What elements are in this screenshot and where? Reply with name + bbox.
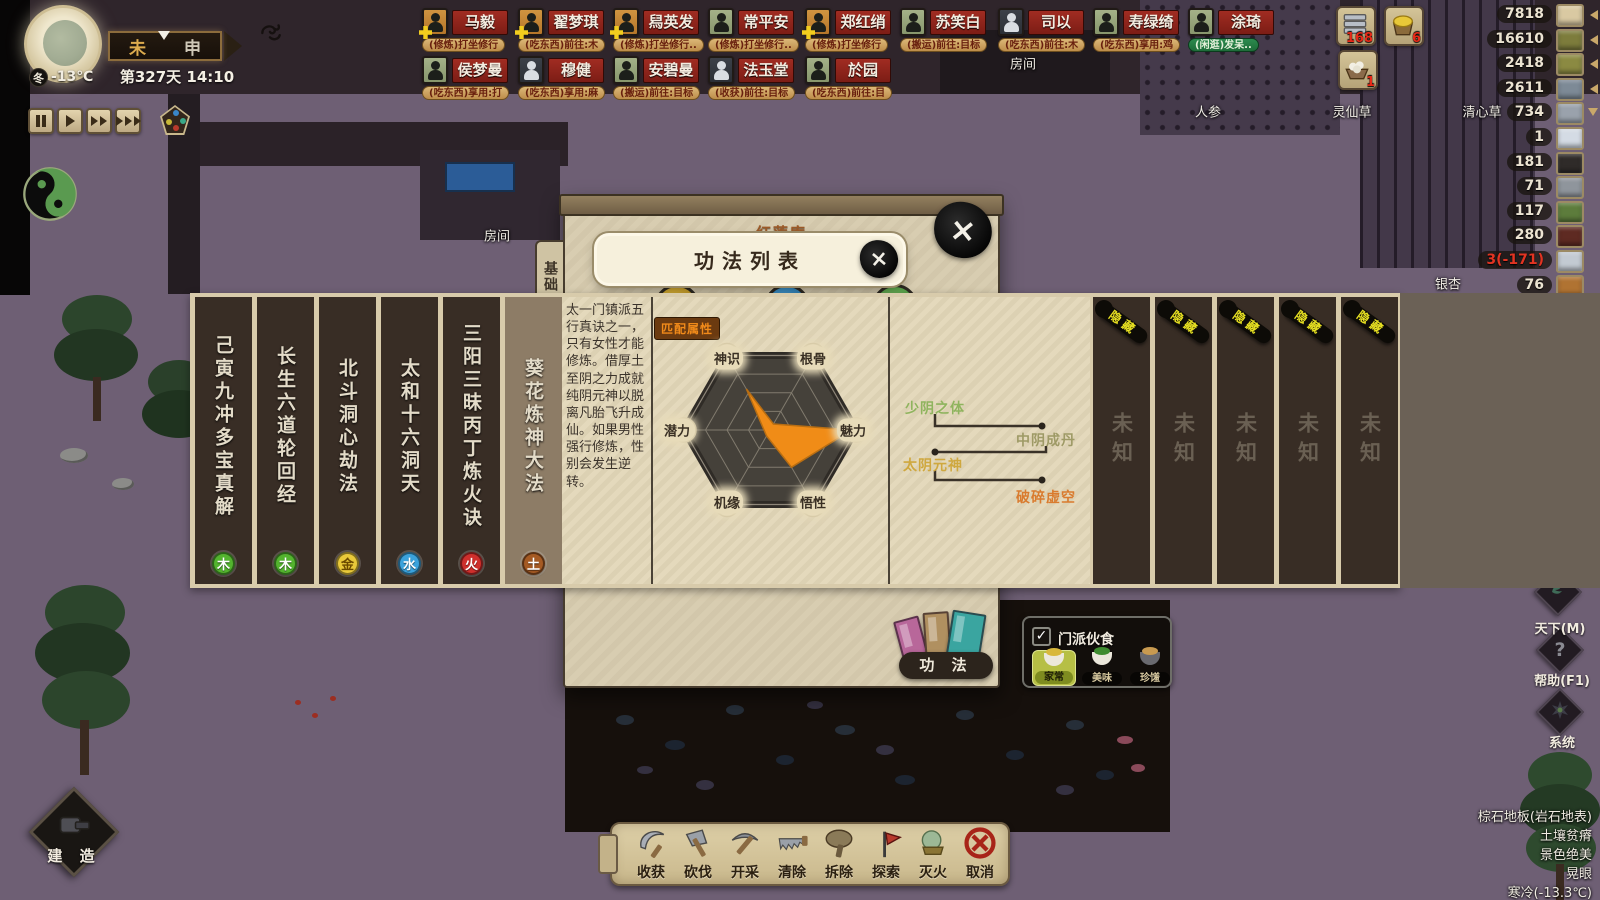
character-avatar-icon <box>805 8 831 36</box>
tool-label: 取消 <box>957 862 1003 882</box>
cooked-food-icon <box>1556 4 1584 27</box>
hour-from: 未 <box>110 34 165 59</box>
system-icon <box>1545 697 1575 727</box>
herb-icon <box>1556 29 1584 52</box>
pause-button[interactable] <box>28 108 54 134</box>
element-badge: 木 <box>212 552 235 575</box>
character-name: 马毅 <box>452 10 508 35</box>
alert-button[interactable]: 1 <box>1338 50 1378 90</box>
resource-count: 280 <box>1507 226 1552 244</box>
hour-to: 申 <box>165 34 220 59</box>
resource-row[interactable]: 2418 <box>1408 54 1598 76</box>
tile-info-line: 景色绝美 <box>1272 844 1592 863</box>
character-card[interactable]: 马毅(修炼)打坐修行 <box>422 8 518 56</box>
ore-icon <box>1556 225 1584 248</box>
temperature-label: -13℃ <box>51 69 93 85</box>
world-label: 人参 <box>1195 102 1221 121</box>
character-name: 舄英发 <box>643 10 699 35</box>
technique-column[interactable]: 己寅九冲多宝真解木 <box>195 297 252 584</box>
character-status: (吃东西)享用:打 <box>422 86 509 100</box>
radar-axis-label: 悟性 <box>797 491 829 514</box>
resource-count: 2418 <box>1497 54 1552 72</box>
element-badge: 土 <box>522 552 545 575</box>
character-name: 司以 <box>1028 10 1084 35</box>
technique-strip-filler <box>1400 293 1600 588</box>
character-card[interactable]: 穆健(吃东西)享用:麻 <box>518 56 614 104</box>
resource-count: 734 <box>1507 103 1552 121</box>
fish-icon <box>1556 78 1584 101</box>
character-card[interactable]: 司以(吃东西)前往:木 <box>998 8 1094 56</box>
tool-extinguish[interactable]: 灭火 <box>910 826 956 884</box>
tile-info-line: 土壤贫瘠 <box>1272 825 1592 844</box>
rock <box>60 448 88 463</box>
tool-label: 拆除 <box>816 862 862 882</box>
element-badge: 金 <box>336 552 359 575</box>
creature <box>312 713 318 718</box>
bowl-icon <box>1556 127 1584 150</box>
divider <box>651 297 653 584</box>
technique-name: 太和十六洞天 <box>396 297 423 552</box>
meal-option-label: 家常 <box>1035 671 1073 684</box>
unknown-technique-column[interactable]: 隐藏未知 <box>1217 297 1274 584</box>
character-name: 翟梦琪 <box>548 10 604 35</box>
hour-arrow-icon <box>224 31 242 61</box>
character-card[interactable]: 安碧曼(搬运)前往:目标 <box>613 56 709 104</box>
cultivation-stage-label: 破碎虚空 <box>1016 487 1076 507</box>
tool-label: 砍伐 <box>675 862 721 882</box>
resource-row[interactable]: 7818 <box>1408 5 1598 27</box>
tool-label: 探索 <box>863 862 909 882</box>
unknown-label: 未知 <box>1169 412 1199 470</box>
resource-row[interactable]: 734 <box>1408 103 1598 125</box>
creature <box>295 700 301 705</box>
character-avatar-icon <box>708 8 734 36</box>
tool-mallet[interactable]: 拆除 <box>816 826 862 884</box>
hour-marker-icon <box>158 31 170 40</box>
element-badge: 木 <box>274 552 297 575</box>
hammer-icon <box>54 810 94 846</box>
character-avatar-icon <box>422 8 448 36</box>
radar-axis-label: 魅力 <box>837 419 869 442</box>
character-name: 於园 <box>835 58 891 83</box>
iron-bar-icon <box>1556 176 1584 199</box>
world-label: 房间 <box>484 226 510 245</box>
technique-name: 葵花炼神大法 <box>520 297 547 552</box>
plant-icon <box>1556 201 1584 224</box>
technique-name: 北斗洞心劫法 <box>334 297 361 552</box>
character-avatar-icon <box>518 8 544 36</box>
character-card[interactable]: 涂琦(闲逛)发呆.. <box>1188 8 1284 56</box>
character-name: 穆健 <box>548 58 604 83</box>
coal-icon <box>1556 152 1584 175</box>
resource-count: 181 <box>1507 153 1552 171</box>
tool-saw[interactable]: 清除 <box>769 826 815 884</box>
cultivation-stage-label: 中阴成丹 <box>1016 430 1076 450</box>
character-name: 苏笑白 <box>930 10 986 35</box>
technique-column[interactable]: 葵花炼神大法土 <box>505 297 562 584</box>
character-status: (修炼)打坐修行 <box>422 38 505 52</box>
tool-sickle[interactable]: 收获 <box>628 826 674 884</box>
pine-tree <box>30 585 140 780</box>
resource-row[interactable]: 117 <box>1408 202 1598 224</box>
character-avatar-icon <box>900 8 926 36</box>
character-name: 常平安 <box>738 10 794 35</box>
creature <box>330 696 336 701</box>
tool-axe[interactable]: 砍伐 <box>675 826 721 884</box>
character-status: (吃东西)前往:木 <box>518 38 605 52</box>
character-status: (闲逛)发呆.. <box>1188 38 1259 52</box>
element-badge: 水 <box>398 552 421 575</box>
radar-axis-label: 神识 <box>711 347 743 370</box>
alert-button[interactable]: 168 <box>1336 6 1376 46</box>
character-card[interactable]: 法玉堂(收获)前往:目标 <box>708 56 804 104</box>
toolbar-scroll-cap <box>598 834 618 874</box>
character-card[interactable]: 舄英发(修炼)打坐修行.. <box>613 8 709 56</box>
resource-row[interactable]: 71 <box>1408 177 1598 199</box>
gongfa-list-dialog: 功法列表 <box>597 236 903 283</box>
fastest-forward-button[interactable] <box>115 108 141 134</box>
meals-title: 门派伙食 <box>1058 629 1114 649</box>
date-time-label: 第327天 14:10 <box>112 66 242 87</box>
character-card[interactable]: 寿绿绮(吃东西)享用:鸡 <box>1093 8 1189 56</box>
resource-count: 1 <box>1526 128 1552 146</box>
rock <box>112 478 134 490</box>
metal-bar-icon <box>1556 102 1584 125</box>
character-status: (修炼)打坐修行.. <box>613 38 704 52</box>
unknown-label: 未知 <box>1355 412 1385 470</box>
character-avatar-icon <box>805 56 831 84</box>
character-card[interactable]: 常平安(修炼)打坐修行.. <box>708 8 804 56</box>
tool-label: 收获 <box>628 862 674 882</box>
dialog-title: 功法列表 <box>694 245 806 274</box>
resource-row[interactable]: 2611 <box>1408 79 1598 101</box>
unknown-label: 未知 <box>1293 412 1323 470</box>
character-avatar-icon <box>613 56 639 84</box>
character-status: (修炼)打坐修行.. <box>708 38 799 52</box>
silver-bar-icon <box>1556 250 1584 273</box>
unknown-technique-column[interactable]: 隐藏未知 <box>1093 297 1150 584</box>
resource-count: 2611 <box>1497 79 1552 97</box>
technique-column[interactable]: 长生六道轮回经木 <box>257 297 314 584</box>
character-status: (吃东西)前往:目 <box>805 86 892 100</box>
character-name: 郑红绡 <box>835 10 891 35</box>
hidden-ribbon-badge: 隐藏 <box>1220 301 1274 346</box>
technique-description: 太一门镇派五行真诀之一，只有女性才能修炼。借厚土至阴之力成就纯阴元神以脱离凡胎飞… <box>566 302 650 578</box>
character-name: 寿绿绮 <box>1123 10 1179 35</box>
sect-meals-panel: ✓ 门派伙食 家常美味珍馐 <box>1022 616 1172 688</box>
character-card[interactable]: 郑红绡(修炼)打坐修行 <box>805 8 901 56</box>
unknown-label: 未知 <box>1231 412 1261 470</box>
tile-info-line: 晃眼 <box>1272 863 1592 882</box>
character-avatar-icon <box>422 56 448 84</box>
tool-label: 灭火 <box>910 862 956 882</box>
system-icon <box>1548 698 1572 727</box>
resource-row[interactable]: 3(-171) <box>1408 251 1598 273</box>
alert-count: 168 <box>1346 31 1373 46</box>
pine-tree <box>50 295 145 425</box>
herb-icon <box>1556 53 1584 76</box>
hidden-ribbon-badge: 隐藏 <box>1344 301 1398 346</box>
meal-option[interactable]: 家常 <box>1032 650 1076 686</box>
cultivation-stage-label: 少阴之体 <box>905 398 965 418</box>
character-status: (搬运)前往:目标 <box>900 38 987 52</box>
resource-count: 3(-171) <box>1478 251 1552 269</box>
character-card[interactable]: 苏笑白(搬运)前往:目标 <box>900 8 996 56</box>
technique-column[interactable]: 太和十六洞天水 <box>381 297 438 584</box>
order-toolbar: 收获砍伐开采清除拆除探索灭火取消 <box>610 822 1010 886</box>
side-button-label: 帮助(F1) <box>1534 670 1590 689</box>
meals-checkbox[interactable]: ✓ <box>1032 627 1051 646</box>
radar-axis-label: 根骨 <box>797 347 829 370</box>
character-status: (收获)前往:目标 <box>708 86 795 100</box>
character-card[interactable]: 侯梦曼(吃东西)享用:打 <box>422 56 518 104</box>
system-button[interactable] <box>1536 688 1584 736</box>
play-button[interactable] <box>57 108 83 134</box>
food-bowl-icon <box>1140 652 1160 665</box>
tool-label: 开采 <box>722 862 768 882</box>
match-attributes-badge: 匹配属性 <box>654 317 720 340</box>
radar-axis-label: 潜力 <box>661 419 693 442</box>
character-status: (吃东西)前往:木 <box>998 38 1085 52</box>
character-avatar-icon <box>1093 8 1119 36</box>
resource-count: 16610 <box>1487 30 1552 48</box>
furniture <box>445 162 515 192</box>
resource-arrow-icon <box>1590 59 1598 69</box>
help-icon: ? <box>1545 635 1575 665</box>
technique-column[interactable]: 三阳三昧丙丁炼火诀火 <box>443 297 500 584</box>
character-status: (修炼)打坐修行 <box>805 38 888 52</box>
resource-row[interactable]: 1 <box>1408 128 1598 150</box>
character-name: 安碧曼 <box>643 58 699 83</box>
meal-option[interactable]: 美味 <box>1080 650 1124 686</box>
resource-row[interactable]: 181 <box>1408 153 1598 175</box>
radar-axis-label: 机缘 <box>711 491 743 514</box>
fast-forward-button[interactable] <box>86 108 112 134</box>
meal-option-label: 珍馐 <box>1130 672 1170 685</box>
character-name: 法玉堂 <box>738 58 794 83</box>
world-label: 灵仙草 <box>1332 102 1371 121</box>
technique-name: 己寅九冲多宝真解 <box>210 297 237 552</box>
technique-column[interactable]: 北斗洞心劫法金 <box>319 297 376 584</box>
technique-name: 三阳三昧丙丁炼火诀 <box>458 297 485 552</box>
hidden-ribbon-badge: 隐藏 <box>1096 301 1150 346</box>
resource-arrow-icon <box>1588 108 1598 116</box>
wind-icon <box>258 20 284 46</box>
tool-pickaxe[interactable]: 开采 <box>722 826 768 884</box>
character-status: (吃东西)享用:麻 <box>518 86 605 100</box>
character-avatar-icon <box>998 8 1024 36</box>
character-avatar-icon <box>1188 8 1214 36</box>
unknown-label: 未知 <box>1107 412 1137 470</box>
tool-cancel[interactable]: 取消 <box>957 826 1003 884</box>
resource-count: 7818 <box>1497 5 1552 23</box>
unknown-technique-column[interactable]: 隐藏未知 <box>1155 297 1212 584</box>
build-button-label: 建 造 <box>18 845 130 866</box>
alert-count: 1 <box>1366 75 1375 90</box>
character-avatar-icon <box>708 56 734 84</box>
character-name: 侯梦曼 <box>452 58 508 83</box>
resource-count: 71 <box>1517 177 1552 195</box>
resource-arrow-icon <box>1590 35 1598 45</box>
unknown-technique-column[interactable]: 隐藏未知 <box>1341 297 1398 584</box>
resource-row[interactable]: 280 <box>1408 226 1598 248</box>
character-status: (吃东西)享用:鸡 <box>1093 38 1180 52</box>
resource-arrow-icon <box>1590 84 1598 94</box>
season-badge: 冬 <box>29 68 48 87</box>
character-avatar-icon <box>518 56 544 84</box>
character-status: (搬运)前往:目标 <box>613 86 700 100</box>
side-button-label: 系统 <box>1549 732 1575 751</box>
character-avatar-icon <box>613 8 639 36</box>
resource-row[interactable]: 16610 <box>1408 30 1598 52</box>
food-bowl-icon <box>1044 653 1064 666</box>
technique-name: 长生六道轮回经 <box>272 297 299 552</box>
resource-count: 117 <box>1507 202 1552 220</box>
tile-info-line: 棕石地板(岩石地表) <box>1272 806 1592 825</box>
cultivation-stage-label: 太阴元神 <box>903 455 963 475</box>
character-name: 涂琦 <box>1218 10 1274 35</box>
unknown-technique-column[interactable]: 隐藏未知 <box>1279 297 1336 584</box>
character-card[interactable]: 於园(吃东西)前往:目 <box>805 56 901 104</box>
hidden-ribbon-badge: 隐藏 <box>1158 301 1212 346</box>
hidden-ribbon-badge: 隐藏 <box>1282 301 1336 346</box>
meal-option-label: 美味 <box>1082 672 1122 685</box>
world-label: 房间 <box>1010 54 1036 73</box>
meal-option[interactable]: 珍馐 <box>1128 650 1172 686</box>
food-bowl-icon <box>1092 652 1112 665</box>
tool-explore[interactable]: 探索 <box>863 826 909 884</box>
stored-items <box>585 690 1155 825</box>
tile-info-line: 寒冷(-13.3℃) <box>1272 882 1592 900</box>
resource-count: 76 <box>1517 276 1552 294</box>
game-screen: 人参灵仙草清心草银杏房间房间 冬 -13℃ 未 申 第327天 14:10 马毅… <box>0 0 1600 900</box>
side-button-label: 天下(M) <box>1535 618 1586 637</box>
tool-label: 清除 <box>769 862 815 882</box>
resource-arrow-icon <box>1590 10 1598 20</box>
element-badge: 火 <box>460 552 483 575</box>
tab-gongfa[interactable]: 功 法 <box>899 652 993 679</box>
character-card[interactable]: 翟梦琪(吃东西)前往:木 <box>518 8 614 56</box>
